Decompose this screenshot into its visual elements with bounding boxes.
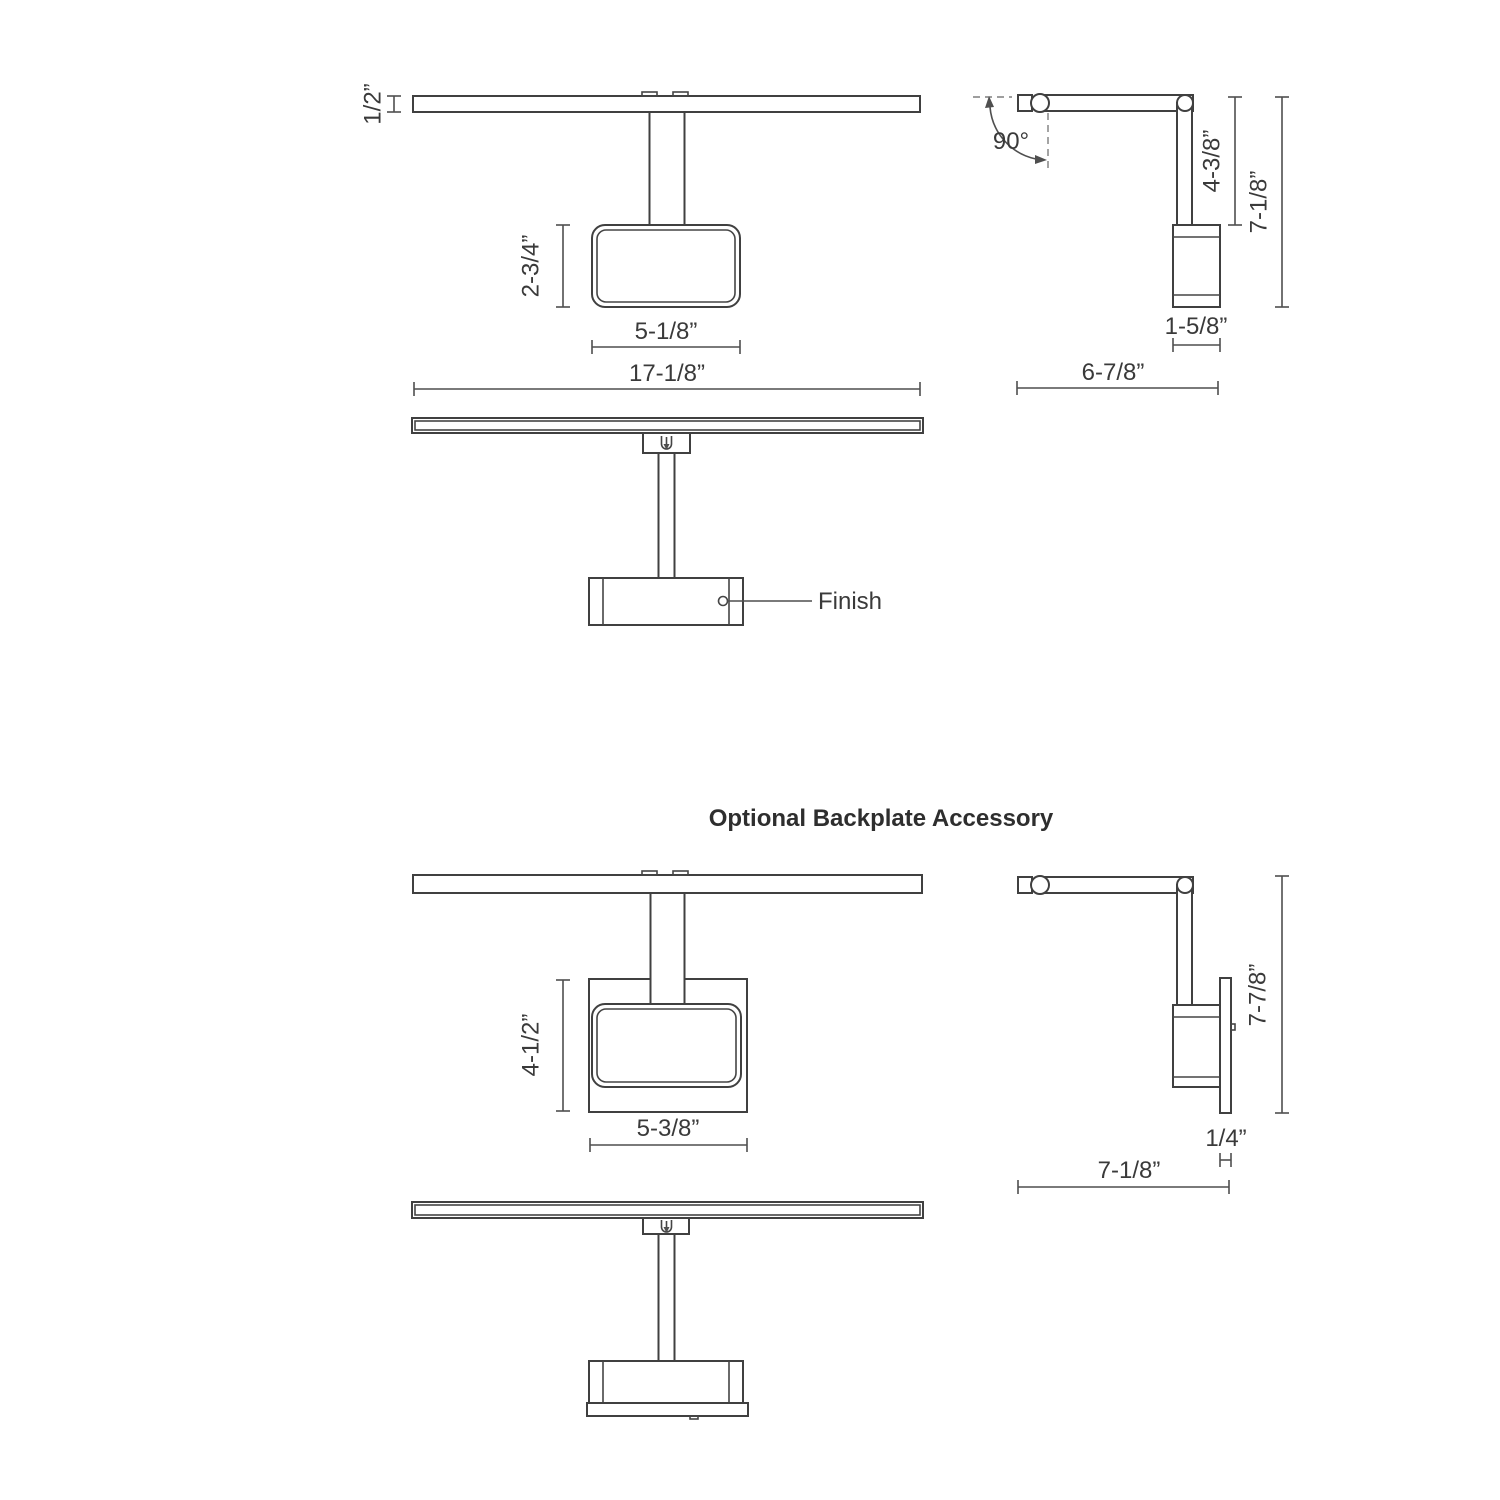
head-body <box>589 578 743 625</box>
light-bar <box>413 875 922 893</box>
standard-bottom-view: Finish <box>412 418 923 625</box>
dim-backplate-thickness: 1/4” <box>1205 1125 1246 1167</box>
backplate-bottom-view <box>412 1202 923 1419</box>
standard-side-view: 90° 4-3/8” 7-1/8” 1-5/8” <box>973 94 1289 395</box>
vertical-arm <box>1177 103 1192 225</box>
dim-head-depth-label: 1-5/8” <box>1165 313 1228 340</box>
bar-tab-left <box>642 92 657 96</box>
section-title: Optional Backplate Accessory <box>709 805 1054 832</box>
dim-bar-thickness-label: 1/2” <box>360 83 387 124</box>
dim-overall-depth: 6-7/8” <box>1017 359 1218 395</box>
horizontal-arm <box>1044 95 1193 111</box>
dim-backplate-width: 5-3/8” <box>590 1115 747 1152</box>
dim-arm-drop: 4-3/8” <box>1199 97 1243 225</box>
head-body <box>589 1361 743 1403</box>
dim-head-width-label: 5-1/8” <box>635 318 698 345</box>
backplate-screw <box>1231 1024 1235 1030</box>
dim-overall-height-label: 7-1/8” <box>1246 171 1273 234</box>
dim-backplate-width-label: 5-3/8” <box>637 1115 700 1142</box>
backplate-side-view: 7-7/8” 1/4” 7-1/8” <box>1018 876 1289 1194</box>
swivel-hinge <box>1031 876 1049 894</box>
backplate-front-view: 4-1/2” 5-3/8” <box>413 871 922 1152</box>
swivel-angle-label: 90° <box>993 128 1029 155</box>
dim-head-width: 5-1/8” <box>592 318 740 354</box>
bar-tab-right <box>673 92 688 96</box>
dim-overall-height: 7-1/8” <box>1246 97 1290 307</box>
head-box-outer <box>592 1004 741 1087</box>
head-box-outer <box>592 225 740 307</box>
spec-sheet: 1/2” 2-3/4” 5-1/8” 17-1/8” 90° <box>0 0 1500 1500</box>
dim-backplate-height-label: 4-1/2” <box>518 1014 545 1077</box>
finish-label: Finish <box>818 588 882 615</box>
horizontal-arm <box>1044 877 1193 893</box>
dim-bar-thickness: 1/2” <box>360 83 402 124</box>
dim-overall-depth-label: 7-1/8” <box>1098 1157 1161 1184</box>
elbow-hinge <box>1177 95 1193 111</box>
vertical-arm <box>1177 885 1192 1005</box>
dim-overall-height: 7-7/8” <box>1245 876 1290 1113</box>
dim-overall-width: 17-1/8” <box>414 360 920 396</box>
dim-backplate-height: 4-1/2” <box>518 980 571 1111</box>
dim-overall-height-label: 7-7/8” <box>1245 964 1272 1027</box>
dim-arm-drop-label: 4-3/8” <box>1199 130 1226 193</box>
dim-overall-width-label: 17-1/8” <box>629 360 705 387</box>
dim-head-depth: 1-5/8” <box>1165 313 1228 352</box>
bar-tab-left <box>642 871 657 875</box>
arm-end-cap <box>1018 877 1032 893</box>
dim-overall-depth: 7-1/8” <box>1018 1157 1229 1194</box>
flange-screw <box>690 1416 698 1419</box>
backplate-flange <box>587 1403 748 1416</box>
arm-end-cap <box>1018 95 1032 111</box>
dimension-drawing: 1/2” 2-3/4” 5-1/8” 17-1/8” 90° <box>0 0 1500 1500</box>
backplate-edge <box>1220 978 1231 1113</box>
swivel-hinge <box>1031 94 1049 112</box>
dim-head-height-label: 2-3/4” <box>518 235 545 298</box>
elbow-hinge <box>1177 877 1193 893</box>
dim-overall-depth-label: 6-7/8” <box>1082 359 1145 386</box>
dim-head-height: 2-3/4” <box>518 225 571 307</box>
bar-tab-right <box>673 871 688 875</box>
light-bar <box>413 96 920 112</box>
angle-arrow-up <box>985 96 994 108</box>
dim-backplate-thickness-label: 1/4” <box>1205 1125 1246 1152</box>
angle-arrow-right <box>1035 155 1047 164</box>
standard-front-view: 1/2” 2-3/4” 5-1/8” 17-1/8” <box>360 83 921 396</box>
